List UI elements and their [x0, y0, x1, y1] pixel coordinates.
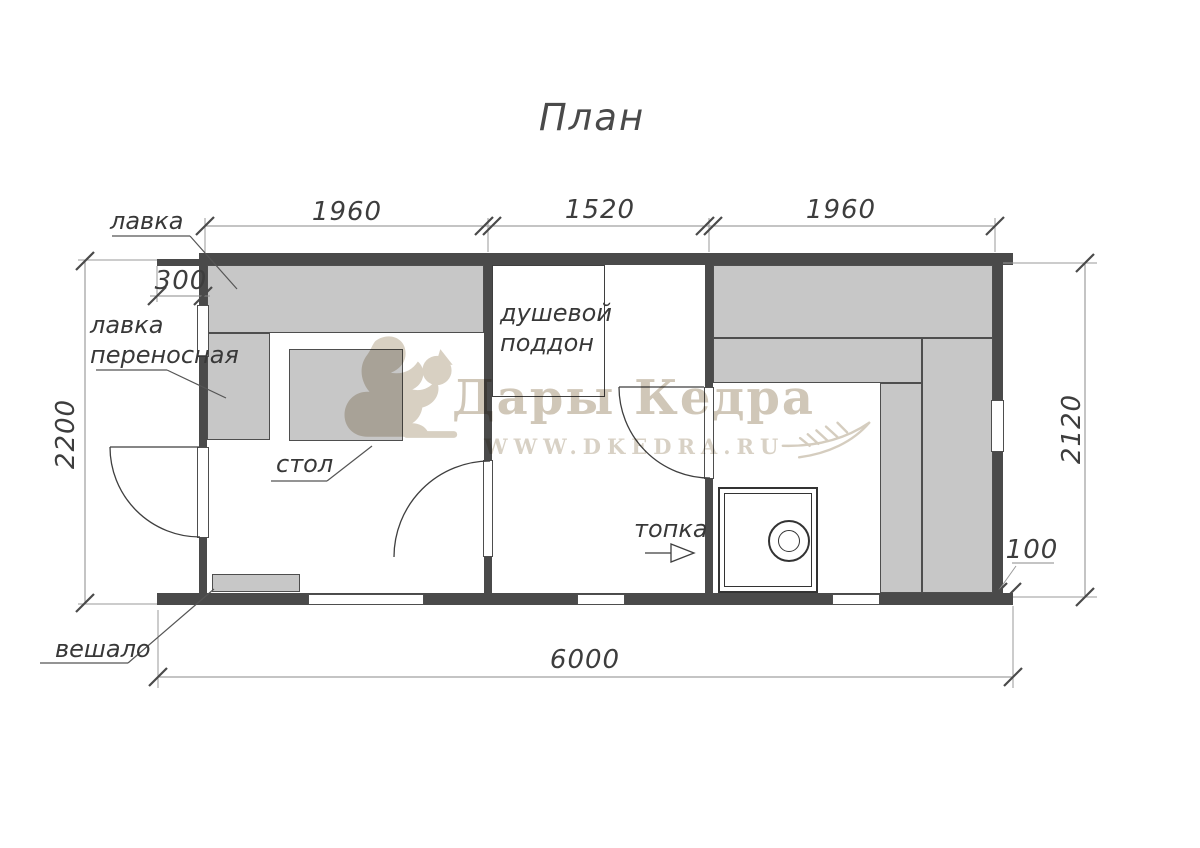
dim-total-width: 6000: [535, 645, 635, 675]
bench-steam-side-step: [880, 383, 922, 593]
dim-porch-offset: 300: [146, 266, 216, 296]
bench-dressing-room-top: [207, 265, 484, 333]
table: [289, 349, 403, 441]
watermark-url: WWW.DKEDRA.RU: [484, 434, 784, 459]
window-bottom-washroom: [577, 594, 625, 605]
dim-top-right: 1960: [791, 195, 891, 225]
window-bottom-left-room: [308, 594, 424, 605]
wheat-sprig-icon: [778, 415, 874, 467]
label-bench: лавка: [110, 206, 183, 236]
firebox-arrow-icon: [645, 544, 694, 562]
label-shower-tray-line2: поддон: [500, 328, 612, 358]
dim-top-mid: 1520: [550, 195, 650, 225]
dim-left-height: 2200: [51, 374, 81, 494]
wall-top: [199, 253, 1013, 265]
door-entrance-leaf: [197, 447, 209, 538]
dim-right-height: 2120: [1057, 369, 1087, 489]
label-portable-bench-line1: лавка: [90, 310, 239, 340]
label-hanger: вешало: [55, 634, 151, 664]
dim-right-offset: 100: [1002, 535, 1062, 565]
bench-steam-side-main: [922, 338, 993, 593]
dim-top-left: 1960: [297, 197, 397, 227]
door-washroom-leaf: [483, 460, 493, 557]
wall-top-porch-stub: [157, 259, 201, 266]
stove-chimney-inner: [778, 530, 800, 552]
label-portable-bench: лавка переносная: [90, 310, 239, 370]
bench-steam-second-tier: [713, 338, 922, 383]
label-firebox: топка: [634, 514, 708, 544]
window-bottom-steam-room: [832, 594, 880, 605]
plan-title: План: [492, 96, 692, 139]
label-table: стол: [276, 449, 333, 479]
stove: [718, 487, 818, 593]
hanger-rack: [212, 574, 300, 592]
label-portable-bench-line2: переносная: [90, 340, 239, 370]
floor-plan-canvas: План: [0, 0, 1200, 848]
label-shower-tray: душевой поддон: [500, 298, 612, 358]
window-right-wall: [991, 400, 1004, 452]
bench-steam-top-tier: [713, 265, 993, 338]
label-shower-tray-line1: душевой: [500, 298, 612, 328]
door-steam-room-opening: [704, 387, 714, 479]
